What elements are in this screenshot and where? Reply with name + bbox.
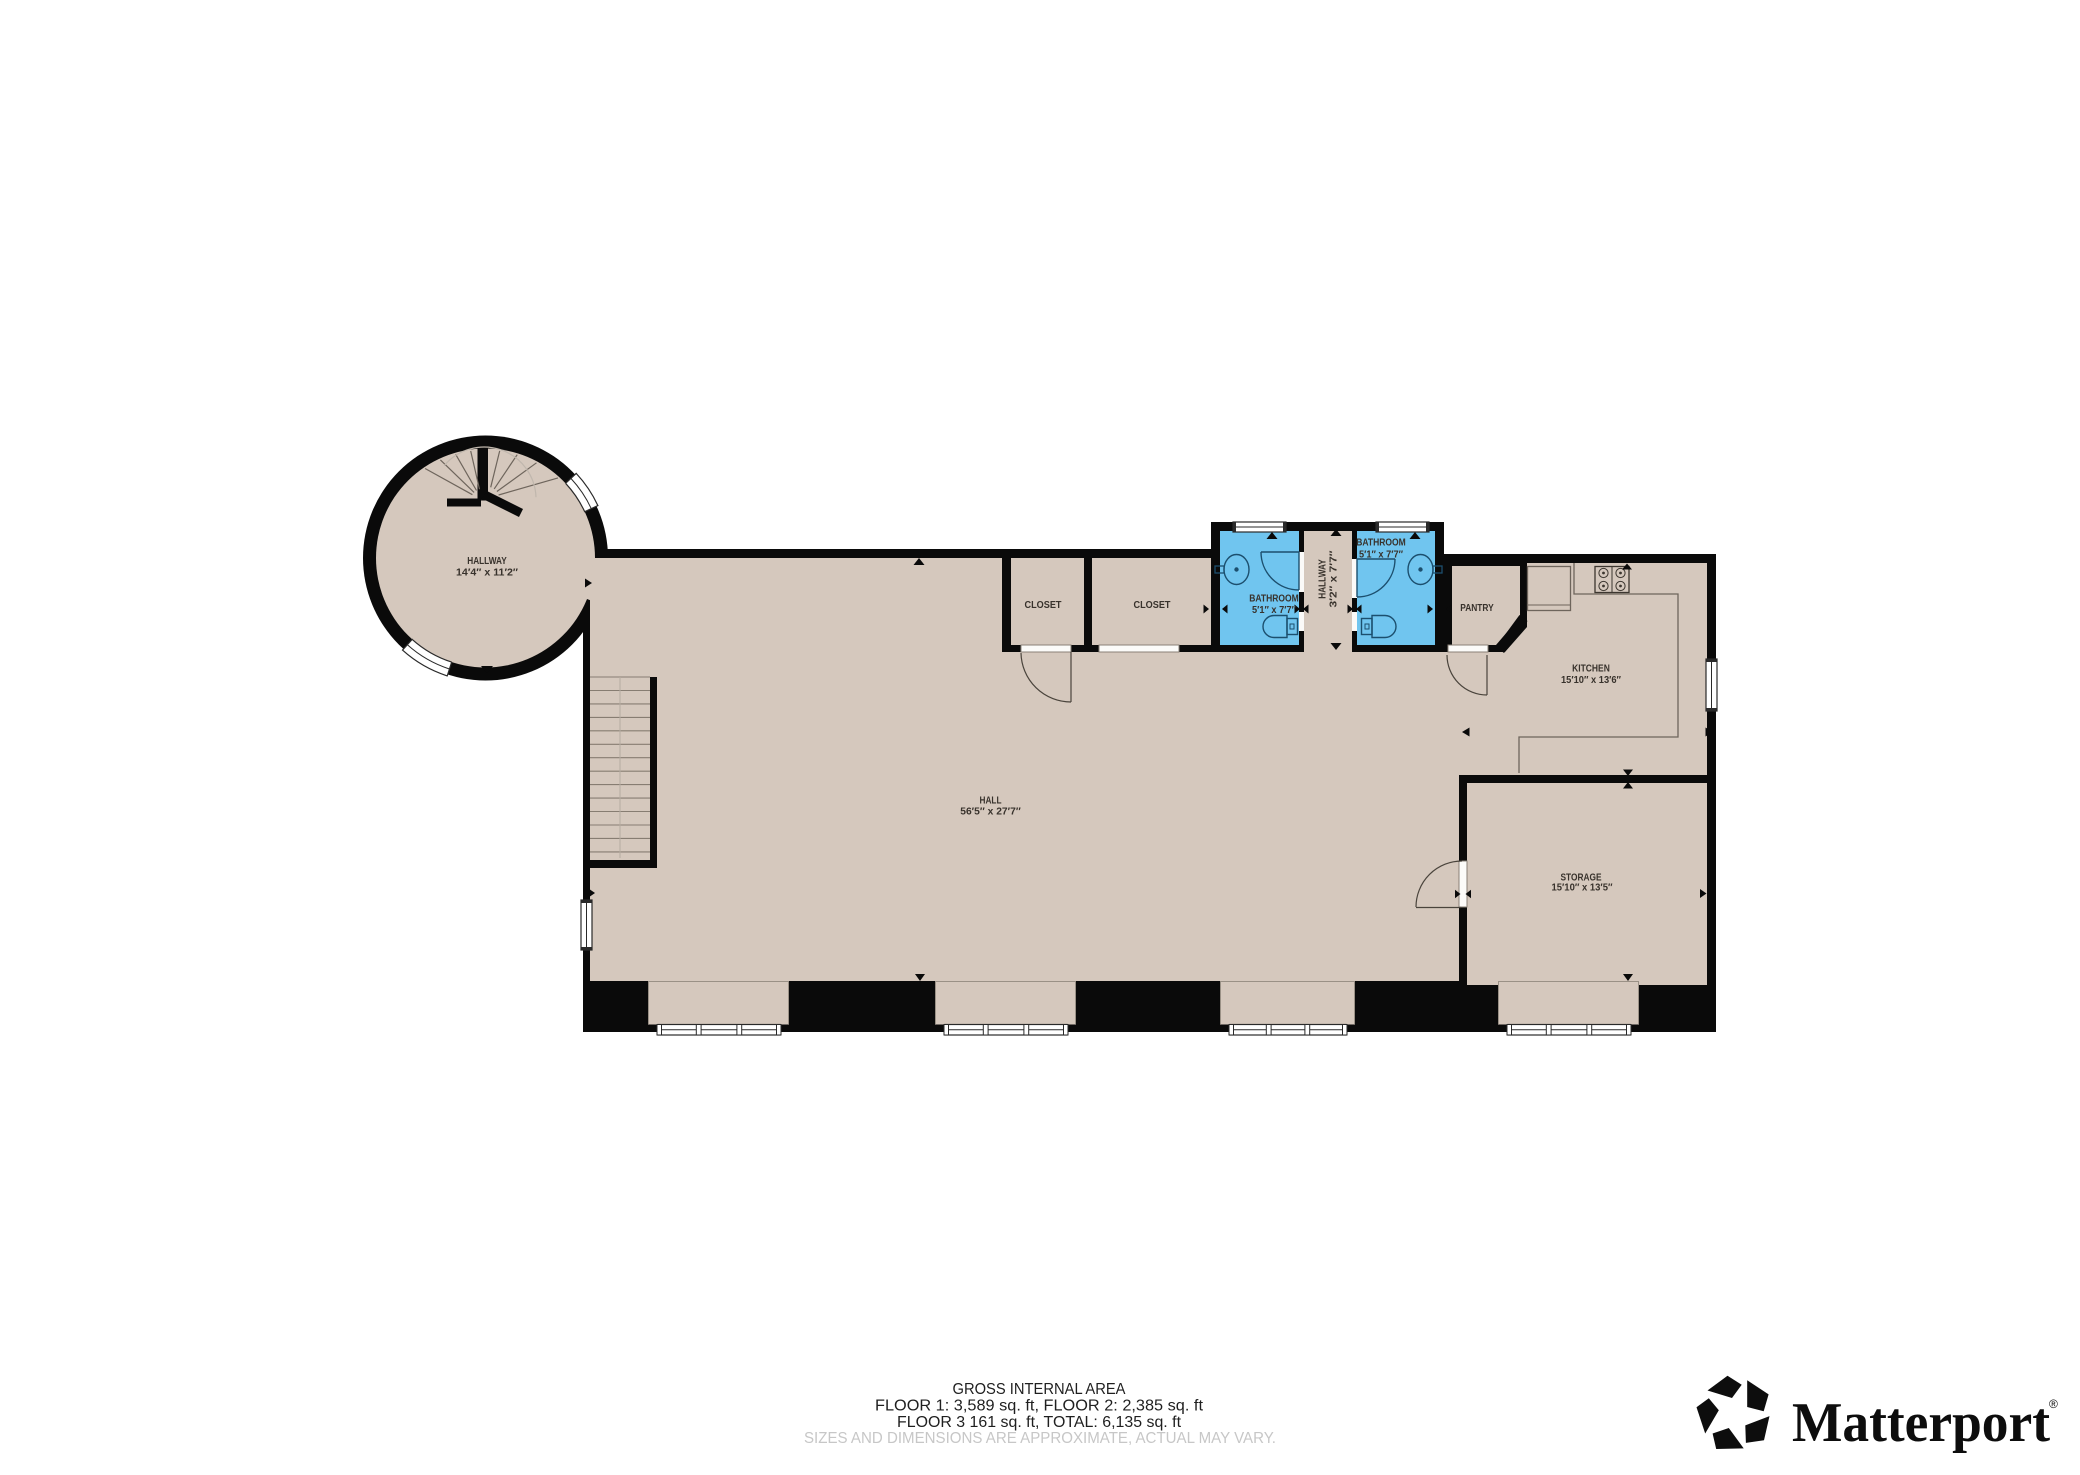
svg-text:15′10″ x 13′5″: 15′10″ x 13′5″: [1552, 882, 1613, 894]
svg-text:BATHROOM: BATHROOM: [1249, 593, 1299, 605]
svg-text:GROSS INTERNAL AREA: GROSS INTERNAL AREA: [953, 1381, 1127, 1398]
svg-text:5′1″ x 7′7″: 5′1″ x 7′7″: [1359, 549, 1403, 561]
svg-text:®: ®: [2049, 1397, 2058, 1411]
svg-text:KITCHEN: KITCHEN: [1572, 663, 1610, 675]
svg-text:HALLWAY: HALLWAY: [467, 555, 507, 567]
svg-text:FLOOR 1: 3,589 sq. ft, FLOOR 2: FLOOR 1: 3,589 sq. ft, FLOOR 2: 2,385 sq…: [875, 1398, 1204, 1415]
svg-text:SIZES AND DIMENSIONS ARE APPRO: SIZES AND DIMENSIONS ARE APPROXIMATE, AC…: [804, 1430, 1276, 1447]
svg-text:14′4″ x 11′2″: 14′4″ x 11′2″: [456, 567, 518, 579]
svg-text:56′5″ x 27′7″: 56′5″ x 27′7″: [960, 806, 1021, 818]
svg-text:PANTRY: PANTRY: [1460, 602, 1494, 614]
svg-text:FLOOR 3 161 sq. ft, TOTAL: 6,1: FLOOR 3 161 sq. ft, TOTAL: 6,135 sq. ft: [897, 1414, 1182, 1431]
svg-text:Matterport: Matterport: [1792, 1392, 2050, 1454]
svg-text:5′1″ x 7′7″: 5′1″ x 7′7″: [1252, 604, 1296, 616]
svg-text:CLOSET: CLOSET: [1025, 599, 1063, 611]
svg-text:3′2″ x 7′7″: 3′2″ x 7′7″: [1328, 551, 1340, 608]
svg-text:15′10″ x 13′6″: 15′10″ x 13′6″: [1561, 674, 1621, 686]
svg-text:CLOSET: CLOSET: [1134, 599, 1172, 611]
svg-text:BATHROOM: BATHROOM: [1356, 537, 1406, 549]
